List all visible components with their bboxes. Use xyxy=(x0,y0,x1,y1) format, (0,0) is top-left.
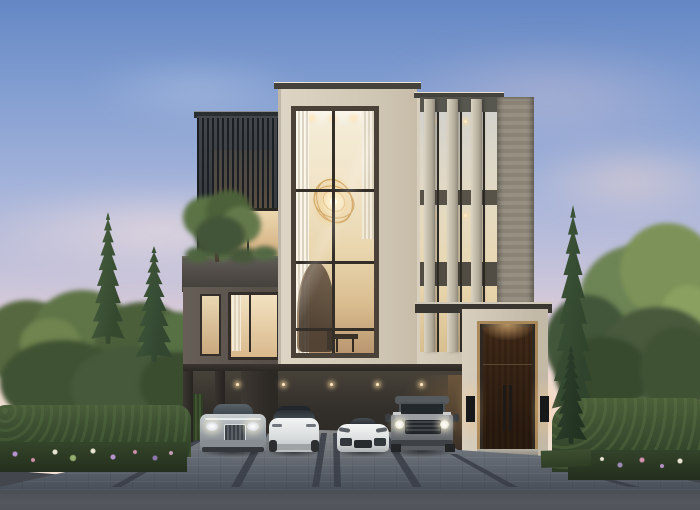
ceiling-downlight xyxy=(464,120,467,123)
suv-headlight xyxy=(395,420,404,429)
flower-bed-left xyxy=(0,442,187,472)
luxury-sedan xyxy=(200,404,266,452)
glass-reflection xyxy=(296,111,374,353)
electric-crossover xyxy=(269,406,319,452)
balcony-tree-canopy xyxy=(195,216,245,256)
ceiling-downlight xyxy=(464,214,467,217)
suv-headlight xyxy=(440,420,449,429)
door-seam xyxy=(483,364,532,365)
carport-ceiling-light xyxy=(330,383,333,386)
sedan-lower-intake xyxy=(202,447,264,452)
suv-mirror xyxy=(453,414,459,422)
crossover-wheel xyxy=(269,440,277,452)
sedan-headlight xyxy=(247,422,259,431)
sportscar-intake xyxy=(374,438,386,446)
wall-sconce xyxy=(540,396,549,422)
carport-ceiling-light xyxy=(236,383,239,386)
crossover-headlight xyxy=(272,424,282,427)
central-tower-roof-cap xyxy=(274,82,421,89)
balcony-shrub xyxy=(252,246,278,261)
sportscar-intake xyxy=(340,438,352,446)
doorway-ceiling-glow xyxy=(481,324,534,340)
offroad-suv xyxy=(389,396,455,452)
suv-wheel xyxy=(445,444,455,452)
lawn-strip xyxy=(541,449,592,468)
bedroom-window-small xyxy=(200,294,221,356)
crossover-headlight xyxy=(306,424,316,427)
tower-edge-shadow xyxy=(278,88,281,372)
facade-fin xyxy=(447,99,458,352)
facade-fin xyxy=(424,99,435,352)
bedroom-window-mullion xyxy=(249,294,251,352)
sportscar-splitter xyxy=(354,440,372,448)
carport-ceiling-light xyxy=(420,383,423,386)
carport-ceiling-light xyxy=(376,383,379,386)
suv-skidplate xyxy=(399,446,445,450)
wing-window-frame xyxy=(437,112,439,352)
grey-stone-column xyxy=(497,97,534,309)
bedroom-curtain xyxy=(232,295,241,351)
exterior-dusk-render xyxy=(0,0,700,510)
suv-indicator xyxy=(443,412,451,415)
wall-sconce xyxy=(466,396,475,422)
carport-ceiling-light xyxy=(282,383,285,386)
door-handle xyxy=(509,385,512,431)
crossover-wheel xyxy=(311,440,319,452)
sedan-hood-highlight xyxy=(205,418,261,420)
door-handle xyxy=(503,385,506,431)
sedan-headlight xyxy=(206,422,218,431)
suv-grille xyxy=(405,420,441,434)
suv-wheel xyxy=(391,444,401,452)
sports-car xyxy=(337,418,389,452)
suv-indicator xyxy=(393,412,401,415)
crossover-lower-trim xyxy=(273,444,315,450)
